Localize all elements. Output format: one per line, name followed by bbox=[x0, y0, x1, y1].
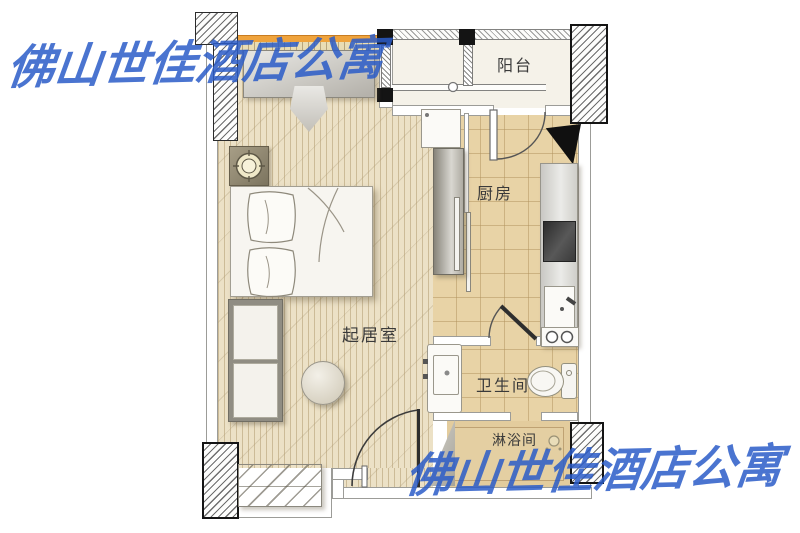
living-room-label: 起居室 bbox=[342, 321, 399, 346]
kitchen-sink bbox=[544, 286, 575, 330]
kitchen-partition-line bbox=[464, 113, 469, 213]
wardrobe-tall-cabinet bbox=[433, 148, 464, 275]
balcony-railing bbox=[392, 29, 570, 40]
bathroom-vanity bbox=[427, 344, 462, 413]
column-bottom-left-of-balcony bbox=[377, 88, 393, 102]
cooktop bbox=[543, 221, 576, 262]
fridge bbox=[421, 109, 461, 148]
balcony-rail-column bbox=[459, 29, 475, 45]
double-bed bbox=[230, 186, 373, 297]
cabinet-shelf-line bbox=[239, 486, 321, 487]
washing-machine bbox=[541, 327, 579, 347]
watermark-bottom-right: 佛山世佳酒店公寓 bbox=[402, 441, 785, 503]
kitchen-label: 厨房 bbox=[477, 180, 513, 204]
kitchen-sliding-track bbox=[466, 212, 471, 292]
toilet-bowl bbox=[527, 366, 564, 397]
sofa-cushion-bottom bbox=[233, 363, 278, 418]
round-side-table bbox=[301, 361, 345, 405]
balcony-label: 阳台 bbox=[497, 52, 533, 76]
bottom-wall-left-of-door bbox=[332, 468, 368, 480]
balcony-kitchen-wall-right bbox=[545, 105, 571, 116]
floor-plan-canvas: 阳台 厨房 起居室 卫生间 淋浴间 佛山世佳酒店公寓 佛山世佳酒店公寓 bbox=[0, 0, 800, 533]
vanity-sink-basin bbox=[433, 355, 459, 395]
bathroom-label: 卫生间 bbox=[476, 372, 530, 396]
balcony-window-strip bbox=[463, 44, 473, 86]
hatched-wall-bottom-left bbox=[202, 442, 239, 519]
sofa-cushion-top bbox=[233, 305, 278, 360]
watermark-top-left: 佛山世佳酒店公寓 bbox=[4, 33, 387, 95]
shoe-cabinet bbox=[238, 464, 322, 507]
balcony-floor bbox=[392, 40, 570, 108]
bathroom-shower-wall-right bbox=[541, 412, 578, 421]
nightstand bbox=[229, 146, 269, 186]
hatched-wall-top-right bbox=[570, 24, 608, 124]
cabinet-handle bbox=[454, 197, 460, 271]
bathroom-shower-wall-left bbox=[433, 412, 511, 421]
